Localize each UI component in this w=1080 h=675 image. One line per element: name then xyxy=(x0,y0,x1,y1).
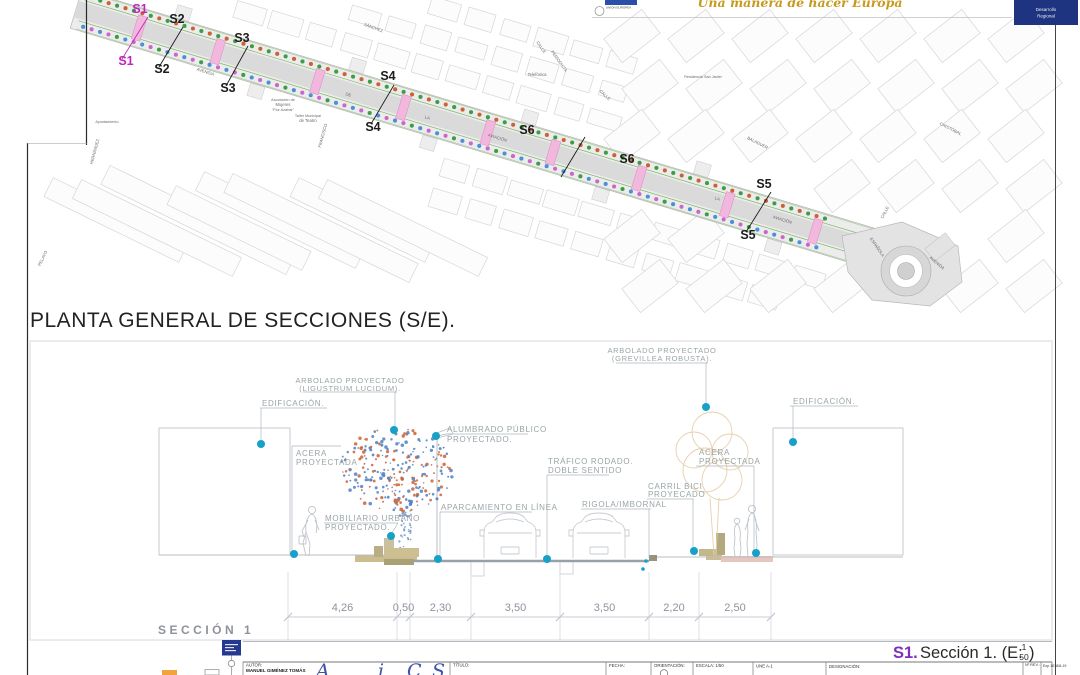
leader-dot xyxy=(789,438,797,446)
tree-dot xyxy=(688,207,692,211)
tree-dot xyxy=(90,27,94,31)
tree-dot xyxy=(182,55,186,59)
foliage-dot xyxy=(390,477,392,479)
tree-dot xyxy=(705,212,709,216)
tree-dot xyxy=(241,73,245,77)
tree-dot xyxy=(486,146,490,150)
foliage-dot xyxy=(392,468,395,471)
drain-box-1 xyxy=(471,562,484,576)
foliage-dot xyxy=(394,494,396,496)
eu-right-box-line2: Regional xyxy=(1037,14,1055,19)
foliage-dot xyxy=(422,487,424,489)
tree-dot xyxy=(208,63,212,67)
leader-dot xyxy=(752,549,760,557)
foliage-dot xyxy=(385,455,388,458)
section-cut-label-S4: S4 xyxy=(365,120,380,134)
foliage-dot xyxy=(386,484,388,486)
tree-dot xyxy=(696,210,700,214)
foliage-dot xyxy=(425,475,427,477)
tree-dot xyxy=(814,245,818,249)
foliage-dot xyxy=(394,507,396,509)
tree-dot xyxy=(612,153,616,157)
map-block xyxy=(860,109,916,162)
tree-dot xyxy=(806,211,810,215)
tree-dot xyxy=(789,206,793,210)
tree-dot xyxy=(208,32,212,36)
logo-letter: S xyxy=(432,660,445,675)
tree-dot xyxy=(697,179,701,183)
foliage-dot xyxy=(440,466,442,468)
foliage-dot xyxy=(430,479,433,482)
foliage-dot xyxy=(435,458,437,460)
trunk-dot xyxy=(398,540,400,542)
map-block xyxy=(465,199,497,226)
label-acera-left-2: PROYECTADA xyxy=(296,458,358,467)
foliage-dot xyxy=(360,485,363,488)
tree-dot xyxy=(713,215,717,219)
trunk-dot xyxy=(410,527,412,529)
foliage-dot xyxy=(348,474,350,476)
foliage-dot xyxy=(394,477,396,479)
trunk-dot xyxy=(403,529,405,531)
tree-dot xyxy=(502,151,506,155)
foliage-dot xyxy=(405,461,408,464)
foliage-dot xyxy=(431,464,433,466)
foliage-dot xyxy=(364,471,366,473)
section-cut-label-S3: S3 xyxy=(234,31,249,45)
map-block xyxy=(385,16,416,39)
tree-dot xyxy=(191,58,195,62)
foliage-dot xyxy=(378,443,381,446)
foliage-dot xyxy=(420,490,423,493)
tree-dot xyxy=(772,233,776,237)
foliage-dot xyxy=(375,458,377,460)
foliage-dot xyxy=(417,504,419,506)
foliage-dot xyxy=(377,471,379,473)
tree-dot xyxy=(570,172,574,176)
foliage-dot xyxy=(408,466,411,469)
label-trafico-2: DOBLE SENTIDO xyxy=(548,466,622,475)
foliage-dot xyxy=(365,479,368,482)
tree-dot xyxy=(410,92,414,96)
foliage-dot xyxy=(402,496,404,498)
tree-dot xyxy=(368,80,372,84)
foliage-dot xyxy=(446,452,449,455)
section-cut-label-S5: S5 xyxy=(756,177,771,191)
logo-letter: C xyxy=(407,660,422,675)
foliage-dot xyxy=(399,501,402,504)
section-cut-label-S2: S2 xyxy=(154,62,169,76)
tree-dot xyxy=(679,205,683,209)
tree-dot xyxy=(351,106,355,110)
foliage-dot xyxy=(354,472,358,476)
foliage-dot xyxy=(357,474,360,477)
foliage-dot xyxy=(440,454,442,456)
foliage-dot xyxy=(404,440,408,444)
foliage-dot xyxy=(365,476,367,478)
designacion-label: DESIGNACIÓN: xyxy=(829,664,860,669)
foliage-dot xyxy=(411,487,415,491)
foliage-dot xyxy=(414,483,417,486)
foliage-dot xyxy=(385,462,387,464)
foliage-dot xyxy=(443,447,445,449)
logo-orange-mark xyxy=(162,670,177,675)
tree-dot xyxy=(738,222,742,226)
foliage-dot xyxy=(346,480,349,483)
foliage-dot xyxy=(353,486,356,489)
map-block xyxy=(988,109,1044,162)
trunk-dot xyxy=(408,529,409,530)
foliage-dot xyxy=(364,449,367,452)
tree-dot xyxy=(722,217,726,221)
foliage-dot xyxy=(437,453,439,455)
tree-dot xyxy=(511,154,515,158)
foliage-dot xyxy=(438,489,439,490)
foliage-dot xyxy=(373,430,376,433)
tree-dot xyxy=(191,26,195,30)
tree-dot xyxy=(671,202,675,206)
tree-dot xyxy=(663,168,667,172)
foliage-dot xyxy=(364,455,366,457)
tree-dot xyxy=(401,121,405,125)
foliage-dot xyxy=(375,441,378,444)
tree-dot xyxy=(756,196,760,200)
tree-dot xyxy=(680,173,684,177)
tree-dot xyxy=(334,70,338,74)
section-labels: EDIFICACIÓN. ARBOLADO PROYECTADO (LIGUST… xyxy=(262,346,855,532)
street-label: Mujeres xyxy=(276,102,291,107)
tree-dot xyxy=(486,115,490,119)
foliage-dot xyxy=(393,493,395,495)
tree-dot xyxy=(300,91,304,95)
foliage-dot xyxy=(382,486,385,489)
pedestrian-right-adult xyxy=(745,505,759,556)
foliage-dot xyxy=(439,447,442,450)
pedestrian-left xyxy=(299,506,319,556)
eu-motto: Una manera de hacer Europa xyxy=(698,0,903,10)
trunk-dot xyxy=(405,526,406,527)
eu-right-box xyxy=(1014,0,1078,25)
foliage-dot xyxy=(358,437,361,440)
foliage-dot xyxy=(399,490,401,492)
tree-dot xyxy=(620,187,624,191)
foliage-dot xyxy=(373,480,376,483)
foliage-dot xyxy=(370,446,372,448)
foliage-dot xyxy=(433,472,435,474)
tree-dot xyxy=(553,135,557,139)
foliage-dot xyxy=(343,474,345,476)
dimension-chain: 4,260,502,303,503,502,202,50 xyxy=(284,572,775,640)
map-block xyxy=(878,59,934,112)
trunk-dot xyxy=(399,510,400,511)
dim-value: 3,50 xyxy=(594,602,615,614)
label-alumbrado-2: PROYECTADO. xyxy=(447,435,512,444)
curb-right xyxy=(649,555,657,561)
tree-dot xyxy=(562,138,566,142)
tree-dot xyxy=(604,151,608,155)
map-block xyxy=(750,59,806,112)
tree-dot xyxy=(629,190,633,194)
tree-dot xyxy=(469,110,473,114)
foliage-dot xyxy=(416,455,419,458)
escala-label: ESCALA: 1/50 xyxy=(696,663,724,668)
foliage-dot xyxy=(425,464,427,466)
label-acera-right-1: ACERA xyxy=(699,448,730,457)
leader-dot xyxy=(387,532,395,540)
label-rigola: RIGOLA/IMBORNAL xyxy=(582,500,667,509)
tree-dot xyxy=(427,129,431,133)
map-block xyxy=(411,53,443,80)
map-block xyxy=(1006,159,1062,212)
tree-dot xyxy=(368,111,372,115)
leader-dot xyxy=(543,555,551,563)
tree-dot xyxy=(107,1,111,5)
tree-planter xyxy=(385,548,419,557)
map-block xyxy=(374,43,411,69)
map-block xyxy=(500,19,531,43)
tree-dot xyxy=(722,186,726,190)
map-block xyxy=(233,1,267,26)
map-block xyxy=(340,33,372,58)
section-cut-label-S1: S1 xyxy=(118,54,133,68)
tree-dot xyxy=(410,124,414,128)
section-drawing: EDIFICACIÓN. ARBOLADO PROYECTADO (LIGUST… xyxy=(30,341,1052,640)
subtitle-main: Sección 1. (E: xyxy=(920,644,1023,662)
autor-label: AUTOR: xyxy=(246,663,262,668)
foliage-dot xyxy=(379,508,381,510)
tree-dot xyxy=(663,200,667,204)
dim-value: 3,50 xyxy=(505,602,526,614)
tree-dot xyxy=(351,75,355,79)
trunk-dot xyxy=(407,539,409,541)
tree-dot xyxy=(123,6,127,10)
map-block xyxy=(942,159,998,212)
subtitle-frac-den: 50 xyxy=(1019,652,1029,662)
foliage-dot xyxy=(406,470,408,472)
foliage-dot xyxy=(380,496,383,499)
tree-dot xyxy=(123,37,127,41)
tree-dot xyxy=(587,177,591,181)
foliage-dot xyxy=(372,470,375,473)
foliage-dot xyxy=(353,451,356,454)
tree-dot xyxy=(536,162,540,166)
tree-dot xyxy=(730,220,734,224)
foliage-dot xyxy=(396,479,398,481)
foliage-dot xyxy=(384,496,386,498)
section-cut-label-S5: S5 xyxy=(740,228,755,242)
foliage-dot xyxy=(446,487,448,489)
tree-dot xyxy=(823,217,827,221)
trunk-dot xyxy=(409,510,411,512)
tree-dot xyxy=(427,97,431,101)
tree-dot xyxy=(384,116,388,120)
tree-dot xyxy=(688,176,692,180)
tree-dot xyxy=(781,235,785,239)
foliage-dot xyxy=(360,498,362,500)
foliage-dot xyxy=(428,503,430,505)
tree-dot xyxy=(764,230,768,234)
foliage-dot xyxy=(419,440,421,442)
foliage-dot xyxy=(371,435,374,438)
tree-dot xyxy=(250,75,254,79)
tree-dot xyxy=(149,14,153,18)
tree-dot xyxy=(359,77,363,81)
trunk-dot xyxy=(409,530,410,531)
foliage-dot xyxy=(430,449,433,452)
tree-dot xyxy=(545,133,549,137)
foliage-dot xyxy=(369,486,371,488)
tree-dot xyxy=(469,141,473,145)
foliage-dot xyxy=(347,451,349,453)
leader-dot xyxy=(432,432,440,440)
foliage-dot xyxy=(438,480,440,482)
tree-dot xyxy=(385,85,389,89)
leader-dot xyxy=(290,550,298,558)
map-block xyxy=(428,188,462,215)
trunk-dot xyxy=(400,524,402,526)
foliage-dot xyxy=(392,459,394,461)
foliage-dot xyxy=(363,501,367,505)
foliage-dot xyxy=(375,486,378,489)
foliage-dot xyxy=(357,447,359,449)
foliage-dot xyxy=(440,485,443,488)
subtitle-sref: S1. xyxy=(893,644,918,662)
tree-dot xyxy=(309,62,313,66)
map-block xyxy=(668,109,724,162)
foliage-dot xyxy=(390,438,392,440)
foliage-dot xyxy=(393,450,396,453)
map-block xyxy=(499,209,534,237)
label-aparcamiento: APARCAMIENTO EN LÍNEA xyxy=(441,503,558,512)
foliage-dot xyxy=(382,490,384,492)
foliage-dot xyxy=(380,472,381,473)
foliage-dot xyxy=(392,490,394,492)
title-block: AUTOR: MANUEL GIMÉNEZ TOMÁS AiCS TÍTULO:… xyxy=(243,660,1066,675)
tree-dot xyxy=(292,57,296,61)
tree-dot xyxy=(545,164,549,168)
foliage-dot xyxy=(376,430,378,432)
tree-dot xyxy=(275,52,279,56)
foliage-dot xyxy=(425,446,427,448)
map-block xyxy=(439,158,470,183)
section-cut-label-S6: S6 xyxy=(619,152,634,166)
foliage-dot xyxy=(423,482,425,484)
leader-dot-small xyxy=(644,559,648,563)
map-block xyxy=(305,22,336,47)
trunk-dot xyxy=(409,524,411,526)
tree-dot xyxy=(98,30,102,34)
foliage-dot xyxy=(416,495,419,498)
tree-dot xyxy=(646,163,650,167)
tree-dot xyxy=(258,78,262,82)
logo-letter: i xyxy=(378,660,384,675)
foliage-dot xyxy=(380,440,383,443)
foliage-dot xyxy=(406,431,409,434)
tree-dot xyxy=(570,141,574,145)
tree-dot xyxy=(267,49,271,53)
foliage-dot xyxy=(395,490,397,492)
foliage-dot xyxy=(350,468,352,470)
label-arbolado-left-2: (LIGUSTRUM LUCIDUM). xyxy=(299,384,401,393)
foliage-dot xyxy=(407,429,409,431)
tree-dot xyxy=(772,201,776,205)
foliage-dot xyxy=(387,469,389,471)
foliage-dot xyxy=(450,475,453,478)
subtitle-frac-num: 1 xyxy=(1022,642,1027,652)
foliage-dot xyxy=(399,471,402,474)
bench xyxy=(374,546,383,557)
nrev-label: Nº REV.: xyxy=(1025,663,1040,667)
map-block xyxy=(464,7,496,33)
tree-dot xyxy=(435,131,439,135)
foliage-dot xyxy=(410,453,412,455)
tree-dot xyxy=(587,146,591,150)
tree-dot xyxy=(275,83,279,87)
tree-dot xyxy=(553,167,557,171)
foliage-dot xyxy=(382,501,384,503)
tree-dot xyxy=(300,59,304,63)
foliage-dot xyxy=(432,445,435,448)
fecha-label: FECHA: xyxy=(609,663,625,668)
tree-dot xyxy=(578,174,582,178)
foliage-dot xyxy=(387,488,389,490)
parked-cars xyxy=(480,513,629,558)
foliage-dot xyxy=(345,470,347,472)
foliage-dot xyxy=(375,497,377,499)
tree-dot xyxy=(814,214,818,218)
tree-dot xyxy=(461,108,465,112)
foliage-dot xyxy=(396,501,398,503)
foliage-dot xyxy=(398,483,401,486)
eu-flag-small-line xyxy=(225,650,236,651)
foliage-dot xyxy=(388,480,390,482)
tree-dot xyxy=(654,166,658,170)
tree-dot xyxy=(317,64,321,68)
foliage-dot xyxy=(413,432,416,435)
formato-label: UNE A-1 xyxy=(756,664,773,669)
map-block xyxy=(445,65,480,90)
foliage-dot xyxy=(390,462,391,463)
foliage-dot xyxy=(342,471,344,473)
foliage-dot xyxy=(393,473,395,475)
foliage-dot xyxy=(384,445,388,449)
leader-dot-small xyxy=(641,567,645,571)
dim-value: 2,20 xyxy=(663,602,684,614)
label-carril-2: PROYECADO xyxy=(648,490,705,499)
tree-dot xyxy=(494,149,498,153)
foliage-dot xyxy=(380,450,382,452)
tree-dot xyxy=(638,161,642,165)
section-cut-label-S1: S1 xyxy=(132,2,147,16)
foliage-dot xyxy=(396,504,398,506)
tree-dot xyxy=(157,16,161,20)
foliage-dot xyxy=(421,473,423,475)
foliage-dot xyxy=(382,474,385,477)
eu-flag-label: UNIÓN EUROPEA xyxy=(606,5,631,10)
tree-dot xyxy=(258,47,262,51)
tree-dot xyxy=(477,144,481,148)
label-acera-left-1: ACERA xyxy=(296,449,327,458)
tree-dot xyxy=(604,182,608,186)
tree-dot xyxy=(739,191,743,195)
foliage-dot xyxy=(349,480,351,482)
street-label: "Flor Azahar" xyxy=(272,108,295,112)
foliage-dot xyxy=(421,464,423,466)
foliage-dot xyxy=(381,474,382,475)
map-block xyxy=(571,231,604,256)
foliage-dot xyxy=(364,439,365,440)
foliage-dot xyxy=(393,484,395,486)
